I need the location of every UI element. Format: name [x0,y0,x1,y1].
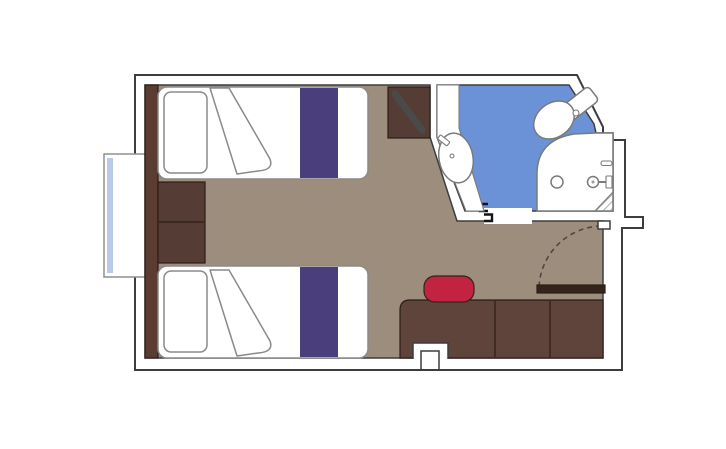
window-glass [107,158,113,273]
cabin-floor-plan [0,0,726,449]
shower-drain [551,176,563,188]
bed-bottom [158,266,368,358]
sink-drain [450,154,454,158]
bed-bottom-runner [300,267,338,357]
shower [537,133,613,211]
shower-shelf [601,161,612,166]
floor-plan-svg [0,0,726,449]
shower-tray [537,133,613,211]
bed-bottom-pillow [164,271,207,352]
bed-top [158,87,368,179]
headboard-panel [145,85,158,358]
door-jamb [598,221,610,229]
shower-mixer-dot [592,181,595,184]
entrance-door-leaf [537,285,605,293]
bed-top-runner [300,88,338,178]
bed-top-pillow [164,92,207,173]
service-notch-inner [421,351,439,369]
shower-wall-unit [606,176,612,188]
toilet-flush-button [573,110,579,116]
stool [424,276,474,302]
